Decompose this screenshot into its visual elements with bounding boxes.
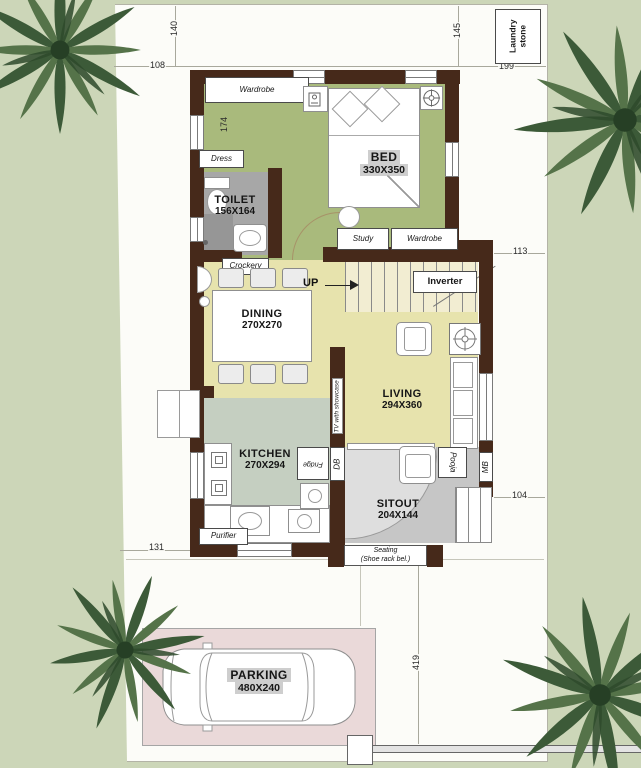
armchair [399,446,436,484]
armchair-cushion [404,327,426,351]
parking-size: 480X240 [235,682,283,694]
oven [300,483,329,509]
study-label: Study [353,235,373,243]
floor-plan-canvas: 140 108 145 199 113 104 131 419 Laundry … [0,0,641,768]
inverter-box: Inverter [413,271,477,293]
wardrobe-label: Wardrobe [240,86,275,94]
pooja-box: Pooja [438,447,467,478]
dim-108: 108 [149,61,166,70]
floor-drain [203,240,208,245]
db-box: DB [330,447,345,481]
dining-name: DINING [242,308,283,320]
wall-segment [190,543,237,557]
dining-chair [282,364,308,384]
dining-chair [250,268,276,288]
sitout-post [328,545,344,567]
armchair [396,322,432,356]
parking-name: PARKING [227,668,290,682]
wardrobe-bed-label: Wardrobe [407,235,442,243]
seating-label: Seating [374,547,398,555]
toilet-room-label: TOILET 156X164 [198,194,272,217]
window [237,543,292,557]
fridge-box: Fridge [297,447,329,480]
sitout-post [427,545,443,567]
tv-showcase-label: TV with showcase [334,380,341,432]
seating-note: (Shoe rack bel.) [361,556,410,564]
armchair-cushion [405,454,431,478]
bed-room-label: BED 330X350 [344,150,424,176]
bed-size: 330X350 [360,164,408,176]
counter-appliance [288,509,320,533]
dim-174: 174 [220,116,229,133]
bed-name: BED [368,150,401,164]
wall-segment [190,70,204,115]
up-arrow-head [350,280,359,290]
parking-label: PARKING 480X240 [209,668,309,694]
blanket-line [329,135,419,136]
dining-size: 270X270 [242,320,282,331]
ceiling-fan-icon [449,323,481,355]
purifier-box: Purifier [199,528,248,545]
pillow [364,86,401,123]
burner-ring [215,484,223,492]
pillow [332,91,369,128]
window [190,115,204,150]
sitout-name: SITOUT [377,498,420,510]
toilet-name: TOILET [214,194,255,206]
compound-wall [373,745,641,753]
kitchen-size: 270X294 [245,460,285,471]
fan-box [420,86,443,110]
wardrobe-box: Wardrobe [205,77,309,103]
sofa-cushion [453,362,473,388]
oven-dial [308,489,322,503]
dining-chair [218,268,244,288]
tv-showcase: TV with showcase [322,374,352,438]
toilet-sink [233,224,267,252]
dim-113: 113 [512,247,528,256]
dim-419: 419 [412,654,421,671]
blanket-fold [387,175,419,207]
sink-basin [239,230,261,246]
window [405,70,437,84]
dim-131: 131 [148,543,165,552]
pooja-label: Pooja [448,452,456,472]
purifier-label: Purifier [211,532,236,540]
walkway-line [360,566,361,626]
appliance-dial [297,514,312,529]
laundry-line2: stone [518,20,528,54]
utility-divider [179,391,180,437]
living-size: 294X360 [382,400,422,411]
laundry-line1: Laundry [508,20,518,54]
mb-box: MB [479,452,493,482]
sofa [450,357,478,449]
mb-label: MB [482,461,490,473]
dress-box: Dress [199,150,244,168]
dim-140: 140 [170,20,179,37]
fridge-label: Fridge [303,460,323,467]
bedside-table [303,86,328,112]
basin-tap [199,296,210,307]
wall-segment [479,247,493,373]
laundry-stone-label: Laundry stone [508,20,528,54]
window [445,142,459,177]
window [190,452,204,499]
study-box: Study [337,228,389,250]
db-label: DB [333,458,341,469]
bed [328,88,420,208]
up-label: UP [303,277,318,289]
entry-steps [455,487,492,543]
fan-icon [421,87,442,109]
dining-chair [250,364,276,384]
seating-box: Seating (Shoe rack bel.) [344,545,427,566]
sofa-cushion [453,390,473,416]
burner [211,480,227,496]
up-arrow-line [325,285,351,286]
dining-chair [218,364,244,384]
living-room-label: LIVING 294X360 [352,388,452,411]
wc-tank [204,177,230,189]
kitchen-name: KITCHEN [239,448,291,460]
window [479,373,493,441]
sitout-room-label: SITOUT 204X144 [352,498,444,521]
laundry-stone-box: Laundry stone [495,9,541,64]
dress-label: Dress [211,155,232,163]
utility-box [157,390,200,438]
dim-104: 104 [511,491,528,500]
window [190,217,204,242]
sitout-size: 204X144 [378,510,418,521]
dim-line-top [114,66,546,67]
sofa-cushion [453,418,473,444]
round-stool [338,206,360,228]
wardrobe-bed-box: Wardrobe [391,228,458,250]
inverter-label: Inverter [428,277,463,287]
gate-post [347,735,373,765]
living-name: LIVING [382,388,421,400]
dim-145: 145 [453,22,462,39]
wall-segment [445,70,459,142]
toilet-size: 156X164 [215,206,255,217]
phone-icon [304,87,327,111]
dining-room-label: DINING 270X270 [212,308,312,331]
driveway-dim-line [418,560,419,744]
